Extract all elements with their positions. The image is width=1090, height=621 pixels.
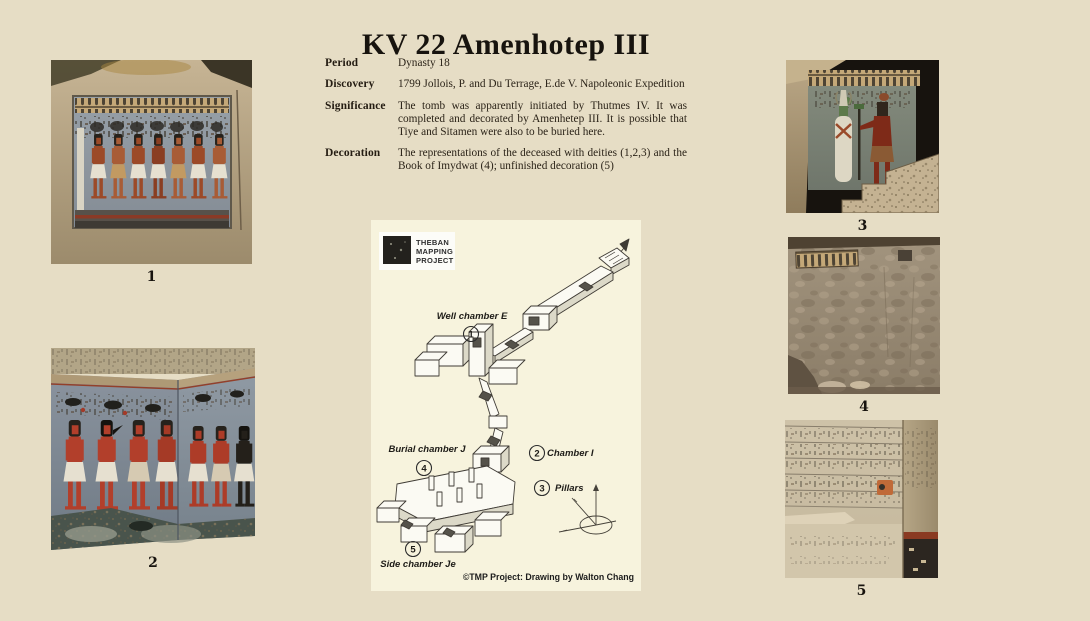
tmp-logo-line1: THEBAN <box>416 238 449 247</box>
dark-dado <box>903 539 938 578</box>
label-chamber-i: Chamber I <box>547 448 594 459</box>
photo-chamber-corner-2: 2 <box>51 348 255 571</box>
callout-5: 5 <box>410 545 416 556</box>
decoration-value: The representations of the deceased with… <box>398 147 687 173</box>
label-burial-chamber: Burial chamber J <box>388 444 466 455</box>
period-label: Period <box>325 57 398 70</box>
callout-2: 2 <box>534 449 539 460</box>
khekher-frieze <box>75 98 229 113</box>
tomb-unfinished-wall-5 <box>785 420 938 578</box>
callout-3: 3 <box>539 484 544 495</box>
khekher-frieze <box>808 70 920 86</box>
white-figure-strip <box>77 128 84 212</box>
label-pillars: Pillars <box>555 483 584 494</box>
photo-unfinished-decoration-5: 5 <box>785 420 938 599</box>
info-panel: Period Dynasty 18 Discovery 1799 Jollois… <box>325 57 687 181</box>
stair-chamber <box>523 306 557 330</box>
tomb-isometric-drawing: THEBAN MAPPING PROJECT <box>371 220 641 591</box>
callout-4: 4 <box>421 464 427 475</box>
tomb-wall-painting-3 <box>786 60 939 213</box>
label-side-chamber: Side chamber Je <box>380 559 456 570</box>
tomb-bare-wall-4 <box>788 237 940 394</box>
osiris-figure <box>835 90 852 182</box>
tmp-logo-line3: PROJECT <box>416 256 454 265</box>
significance-label: Significance <box>325 100 398 139</box>
photo-label-5: 5 <box>785 583 938 599</box>
callout-1: 1 <box>468 330 474 341</box>
discovery-value: 1799 Jollois, P. and Du Terrage, E.de V.… <box>398 78 687 91</box>
period-value: Dynasty 18 <box>398 57 687 70</box>
significance-value: The tomb was apparently initiated by Thu… <box>398 100 687 139</box>
tmp-logo-icon <box>383 236 411 264</box>
tmp-logo: THEBAN MAPPING PROJECT <box>379 232 455 270</box>
label-well-chamber: Well chamber E <box>437 311 508 322</box>
tmp-logo-line2: MAPPING <box>416 247 453 256</box>
photo-deities-wall-1: 1 <box>51 60 252 285</box>
info-row-significance: Significance The tomb was apparently ini… <box>325 100 687 139</box>
photo-bare-wall-4: 4 <box>788 237 940 415</box>
photo-osiris-scene-3: 3 <box>786 60 939 234</box>
photo-label-3: 3 <box>786 218 939 234</box>
info-row-period: Period Dynasty 18 <box>325 57 687 70</box>
frieze-remnant <box>796 250 859 268</box>
dark-patch <box>898 250 912 261</box>
photo-label-2: 2 <box>51 555 255 571</box>
decoration-label: Decoration <box>325 147 398 173</box>
info-row-discovery: Discovery 1799 Jollois, P. and Du Terrag… <box>325 78 687 91</box>
tomb-map: THEBAN MAPPING PROJECT <box>371 220 641 591</box>
sketched-hieroglyph-rows <box>785 426 903 508</box>
red-border-stripe <box>903 532 938 539</box>
discovery-label: Discovery <box>325 78 398 91</box>
tomb-chamber-painting-2 <box>51 348 255 550</box>
map-caption: ©TMP Project: Drawing by Walton Chang <box>463 572 634 582</box>
info-row-decoration: Decoration The representations of the de… <box>325 147 687 173</box>
photo-label-4: 4 <box>788 399 940 415</box>
photo-label-1: 1 <box>51 269 252 285</box>
tomb-wall-painting-1 <box>51 60 252 264</box>
